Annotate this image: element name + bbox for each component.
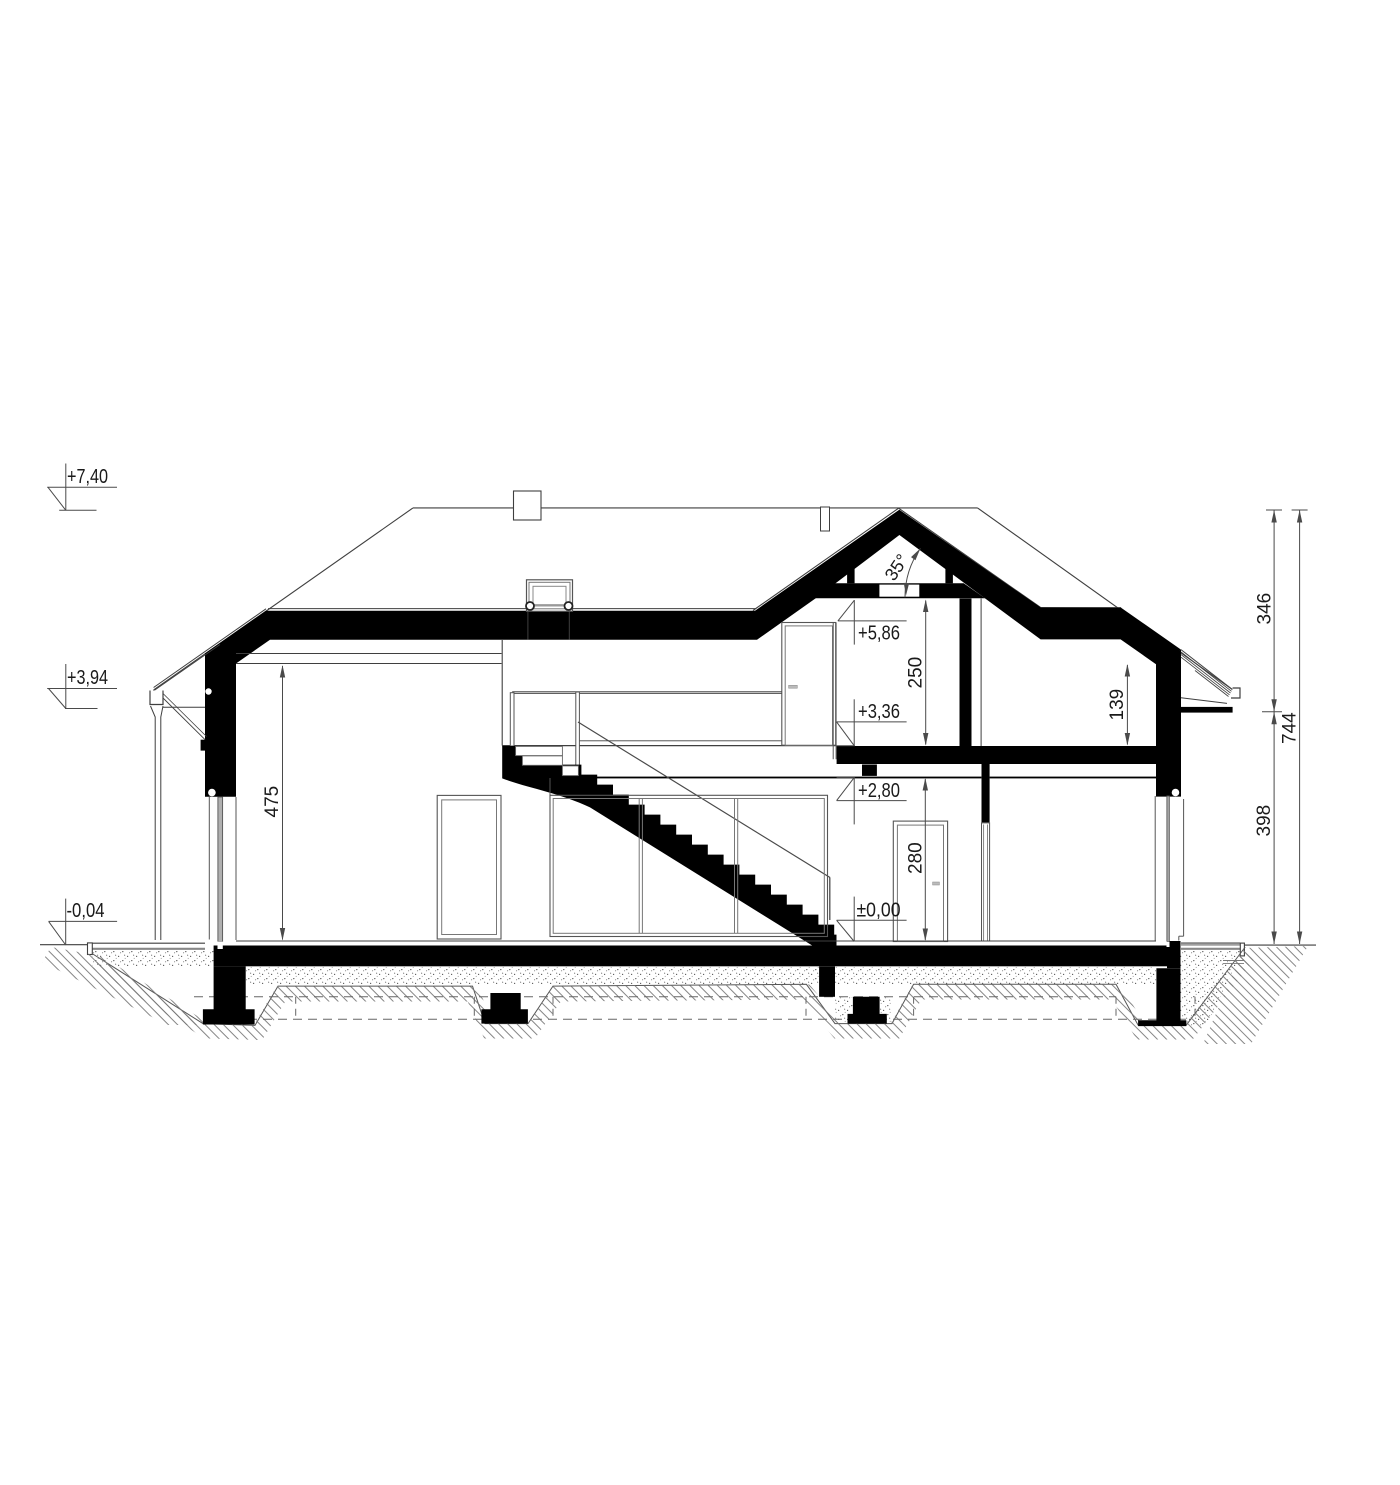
svg-text:+7,40: +7,40 — [67, 465, 108, 488]
svg-text:250: 250 — [906, 657, 927, 689]
svg-text:346: 346 — [1255, 593, 1276, 625]
svg-text:-0,04: -0,04 — [67, 899, 105, 922]
svg-text:280: 280 — [906, 842, 927, 874]
svg-text:+3,36: +3,36 — [858, 700, 900, 723]
svg-text:398: 398 — [1254, 805, 1275, 837]
svg-text:475: 475 — [262, 786, 283, 818]
svg-text:±0,00: ±0,00 — [857, 899, 901, 922]
svg-text:+3,94: +3,94 — [67, 666, 108, 689]
svg-text:+2,80: +2,80 — [858, 779, 900, 802]
svg-text:+5,86: +5,86 — [858, 622, 900, 645]
svg-text:744: 744 — [1280, 712, 1301, 744]
svg-text:139: 139 — [1107, 689, 1128, 721]
